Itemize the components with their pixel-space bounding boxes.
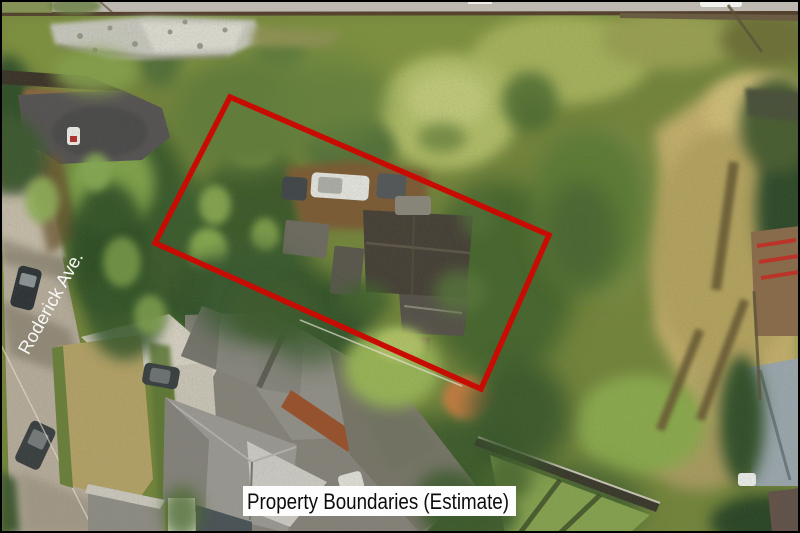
svg-text:Property Boundaries (Estimate): Property Boundaries (Estimate)	[247, 489, 509, 514]
